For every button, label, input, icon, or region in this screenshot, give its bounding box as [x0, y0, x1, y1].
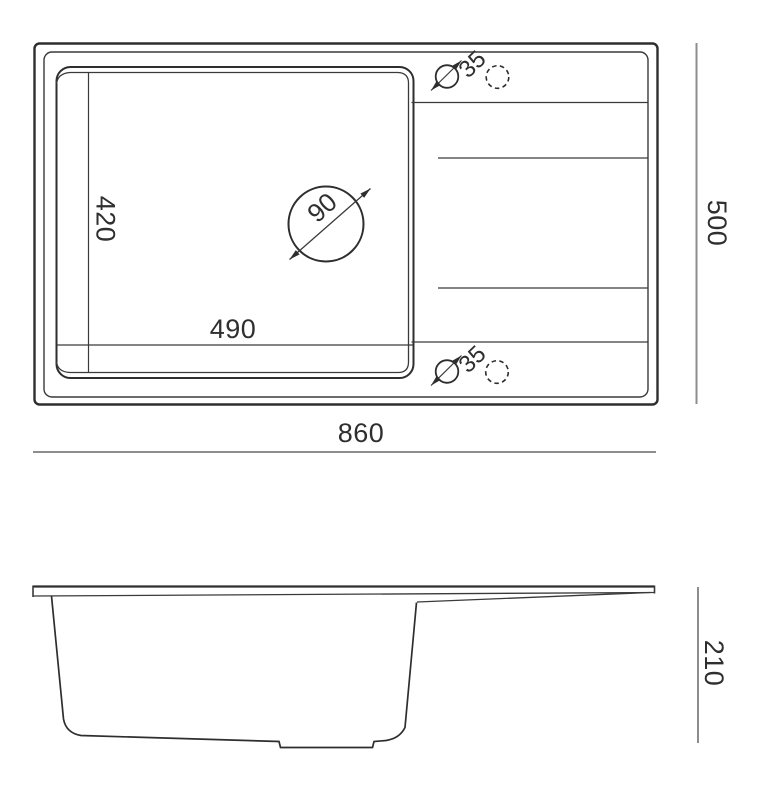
basin-length-label: 490 — [210, 314, 257, 344]
drain-diameter-label: 90 — [301, 187, 343, 229]
overall-length-label: 860 — [338, 418, 385, 448]
drain-hole: 90 — [289, 187, 371, 262]
side-view — [33, 586, 655, 748]
drawing-canvas: 420 490 90 35 35 — [0, 0, 762, 800]
tap-hole-top-circle — [436, 65, 459, 88]
overall-dimensions: 860 500 210 — [33, 43, 732, 743]
side-basin-profile — [52, 596, 417, 748]
sink-outer-edge — [35, 44, 658, 405]
tap-hole-top-optional-circle — [486, 66, 509, 89]
tap-hole-bottom-optional-circle — [486, 361, 509, 384]
tap-hole-bottom: 35 — [431, 341, 508, 386]
tap-hole-bottom-circle — [436, 360, 459, 383]
sink-technical-drawing: 420 490 90 35 35 — [0, 0, 762, 800]
overall-height-label: 210 — [699, 640, 729, 687]
overall-width-label: 500 — [702, 200, 732, 247]
basin-width-label: 420 — [91, 196, 121, 243]
top-view: 420 490 90 35 35 — [35, 44, 658, 405]
